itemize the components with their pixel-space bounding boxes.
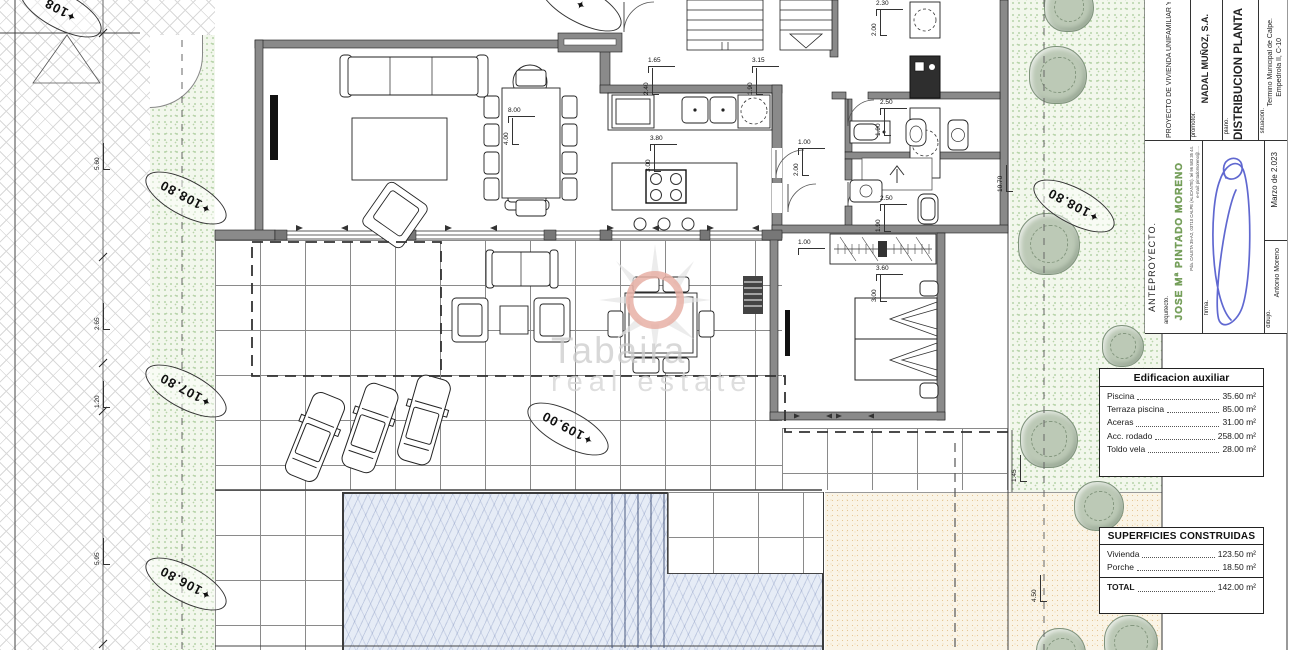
dim-label: 1.20 — [95, 381, 110, 408]
dim-label: 2.65 — [95, 303, 110, 330]
plan-name: DISTRIBUCION PLANTA — [1233, 8, 1245, 140]
location-line1: Termino Municipal de Calpe. — [1267, 18, 1274, 106]
table-row: Terraza piscina85.00 m² — [1100, 403, 1263, 416]
table-total-row: TOTAL142.00 m² — [1100, 577, 1263, 594]
location-label: situación. — [1260, 108, 1266, 133]
dim-label: 1.00 — [798, 240, 825, 255]
table-row: Aceras31.00 m² — [1100, 416, 1263, 429]
dim-label: 4.00 — [504, 118, 519, 145]
built-table-title: SUPERFICIES CONSTRUIDAS — [1100, 528, 1263, 545]
dim-label: 3.00 — [872, 275, 887, 302]
drawer-name: Antonio Moreno — [1274, 248, 1281, 297]
location-line2: Empedrola II, C-10 — [1276, 38, 1283, 97]
architect-address: Pda. CALETA 35-A2, 03710 CALPE (ALICANTE… — [1189, 146, 1194, 271]
table-row: Vivienda123.50 m² — [1100, 548, 1263, 561]
dim-label: 1.90 — [876, 109, 891, 136]
floor-plan-sheet: Tabaira real estate 108 ✦ ✦ 108.80 ✦ 107… — [0, 0, 1300, 650]
plan-label: plano. — [1224, 118, 1230, 134]
date-value: Marzo de 2.023 — [1270, 152, 1279, 208]
dim-label: 3.00 — [646, 145, 661, 172]
architect-label: arquitecto. — [1164, 296, 1170, 324]
drawer-label: dibujo. — [1266, 310, 1272, 328]
table-row: Toldo vela28.00 m² — [1100, 443, 1263, 456]
built-surfaces-table: SUPERFICIES CONSTRUIDAS Vivienda123.50 m… — [1099, 527, 1264, 614]
dim-label: 10.70 — [998, 165, 1013, 192]
dim-label: 1.90 — [876, 205, 891, 232]
table-row: Acc. rodado258.00 m² — [1100, 430, 1263, 443]
project-title: PROYECTO DE VIVIENDA UNIFAMILIAR Y P — [1166, 2, 1173, 138]
table-row: Porche18.50 m² — [1100, 561, 1263, 574]
table-row: Piscina35.60 m² — [1100, 390, 1263, 403]
dim-label: 2.40 — [644, 68, 659, 95]
dim-label: 2.00 — [872, 9, 887, 36]
architect-email: e-mail: pintadomoreno@..... — [1195, 146, 1200, 198]
promoter-name: NADAL MUÑOZ, S.A. — [1200, 14, 1210, 103]
benchmark-star-icon: ✦ — [573, 0, 588, 12]
dim-label: 2.00 — [794, 149, 809, 176]
dim-label: 1.90 — [748, 68, 763, 95]
architect-name: JOSE Mª PINTADO MORENO — [1174, 162, 1185, 320]
signature-scribble — [1206, 150, 1262, 335]
aux-table-title: Edificacion auxiliar — [1100, 369, 1263, 387]
stage-label: ANTEPROYECTO. — [1147, 222, 1157, 312]
aux-surfaces-table: Edificacion auxiliar Piscina35.60 m² Ter… — [1099, 368, 1264, 477]
promoter-label: promotor. — [1191, 112, 1197, 137]
dim-label: 5.95 — [95, 538, 110, 565]
dim-label: 1.45 — [1012, 455, 1027, 482]
dim-label: 5.60 — [95, 143, 110, 170]
dim-label: 4.50 — [1032, 575, 1047, 602]
